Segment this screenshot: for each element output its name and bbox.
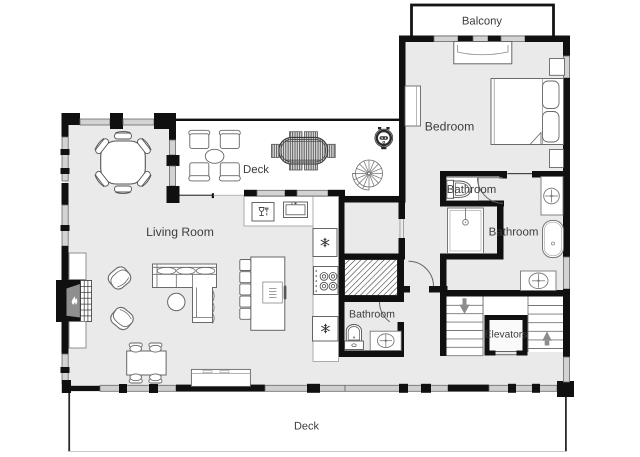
svg-text:Bathroom: Bathroom [489,226,539,238]
svg-text:Elevators: Elevators [485,330,527,341]
svg-text:Balcony: Balcony [462,16,503,28]
svg-text:Deck: Deck [243,164,269,176]
svg-text:Living Room: Living Room [146,225,214,239]
svg-text:Bedroom: Bedroom [425,120,474,134]
svg-text:Bathroom: Bathroom [447,184,496,196]
svg-text:Deck: Deck [294,421,320,433]
svg-text:Bathroom: Bathroom [349,309,395,321]
